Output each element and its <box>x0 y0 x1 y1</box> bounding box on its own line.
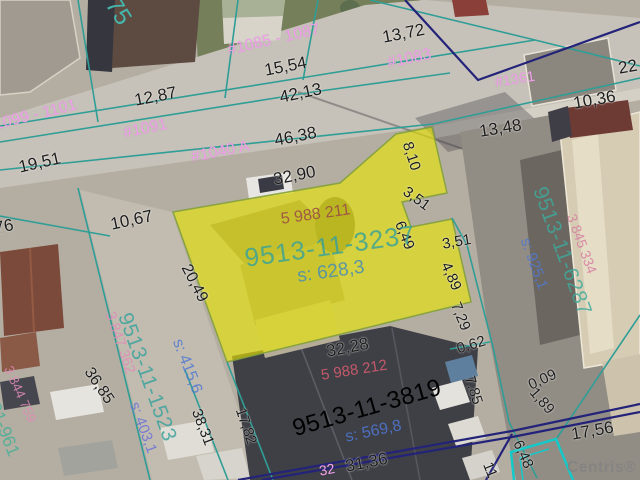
measurement-label: 0,62 <box>455 333 487 356</box>
measurement-label: 19,51 <box>17 149 62 175</box>
address-label: 32 <box>318 461 336 478</box>
measurement-label: 12,87 <box>133 84 178 109</box>
address-label: #1361 <box>494 70 536 91</box>
measurement-label: 42,13 <box>278 80 323 105</box>
measurement-label: 7,85 <box>462 374 485 406</box>
measurement-label: 7,29 <box>448 300 473 333</box>
centris-watermark: Centris® <box>567 459 636 477</box>
measurement-label: 8,10 <box>400 140 423 172</box>
measurement-label: 3,51 <box>400 184 432 213</box>
parcel-label: s: 925,1 <box>518 236 550 291</box>
measurement-label: 10,36 <box>572 88 617 112</box>
measurement-label: 3,51 <box>441 232 472 252</box>
parcel-label: 5 988 211 <box>280 202 352 228</box>
measurement-label: 32,28 <box>325 335 370 360</box>
address-label: 75 <box>101 0 136 29</box>
measurement-label: 46,38 <box>273 124 318 149</box>
map-labels-layer: 19,5112,8715,5442,1313,7246,3832,9013,48… <box>0 0 640 480</box>
address-label: #1083 <box>386 47 433 72</box>
measurement-label: 11 <box>480 460 500 480</box>
address-label: #1085 - 1087 <box>226 22 321 59</box>
measurement-label: 20,49 <box>178 262 210 305</box>
measurement-label: 31,36 <box>344 450 389 475</box>
measurement-label: 6,48 <box>510 438 536 471</box>
measurement-label: 32,90 <box>272 163 317 188</box>
measurement-label: 13,72 <box>381 21 426 46</box>
measurement-label: 15,54 <box>263 54 308 79</box>
address-label: #1099 - 1101 <box>0 97 78 135</box>
measurement-label: 1,89 <box>527 385 557 417</box>
address-label: #1091 <box>122 117 169 142</box>
measurement-label: 38,31 <box>189 407 216 447</box>
address-label: #1040 A <box>190 139 251 166</box>
parcel-label: 5 988 212 <box>320 358 388 383</box>
cadastral-map: 19,5112,8715,5442,1313,7246,3832,9013,48… <box>0 0 640 480</box>
measurement-label: 4,89 <box>438 260 464 293</box>
measurement-label: 76 <box>0 216 15 237</box>
measurement-label: 10,67 <box>109 207 154 232</box>
measurement-label: 13,48 <box>478 116 523 139</box>
parcel-label: s: 415,6 <box>169 337 204 396</box>
measurement-label: 36,85 <box>81 365 117 407</box>
measurement-label: 17,56 <box>570 419 615 443</box>
measurement-label: 17,82 <box>233 406 259 446</box>
measurement-label: 22 <box>617 57 639 77</box>
